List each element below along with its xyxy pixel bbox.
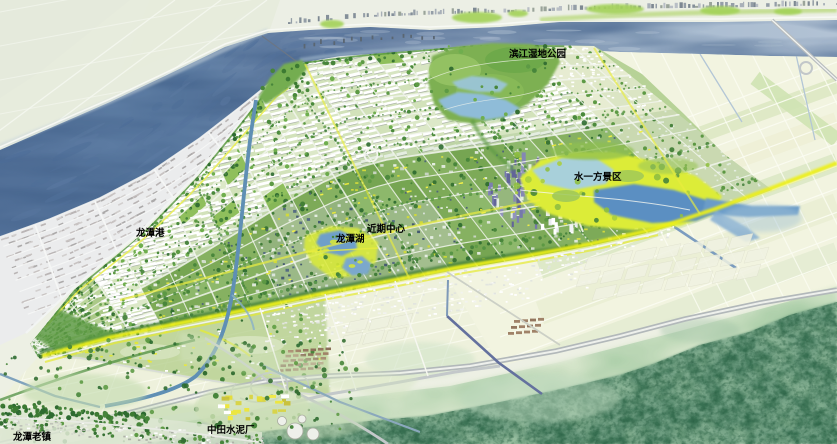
svg-text:龙潭老镇: 龙潭老镇 (12, 431, 52, 443)
svg-text:中田水泥厂: 中田水泥厂 (207, 424, 255, 436)
svg-text:滨江湿地公园: 滨江湿地公园 (509, 48, 566, 60)
svg-text:龙潭港: 龙潭港 (135, 227, 165, 239)
svg-text:水一方景区: 水一方景区 (574, 171, 622, 183)
svg-text:龙潭湖: 龙潭湖 (335, 233, 365, 245)
svg-text:近期中心: 近期中心 (367, 223, 406, 235)
